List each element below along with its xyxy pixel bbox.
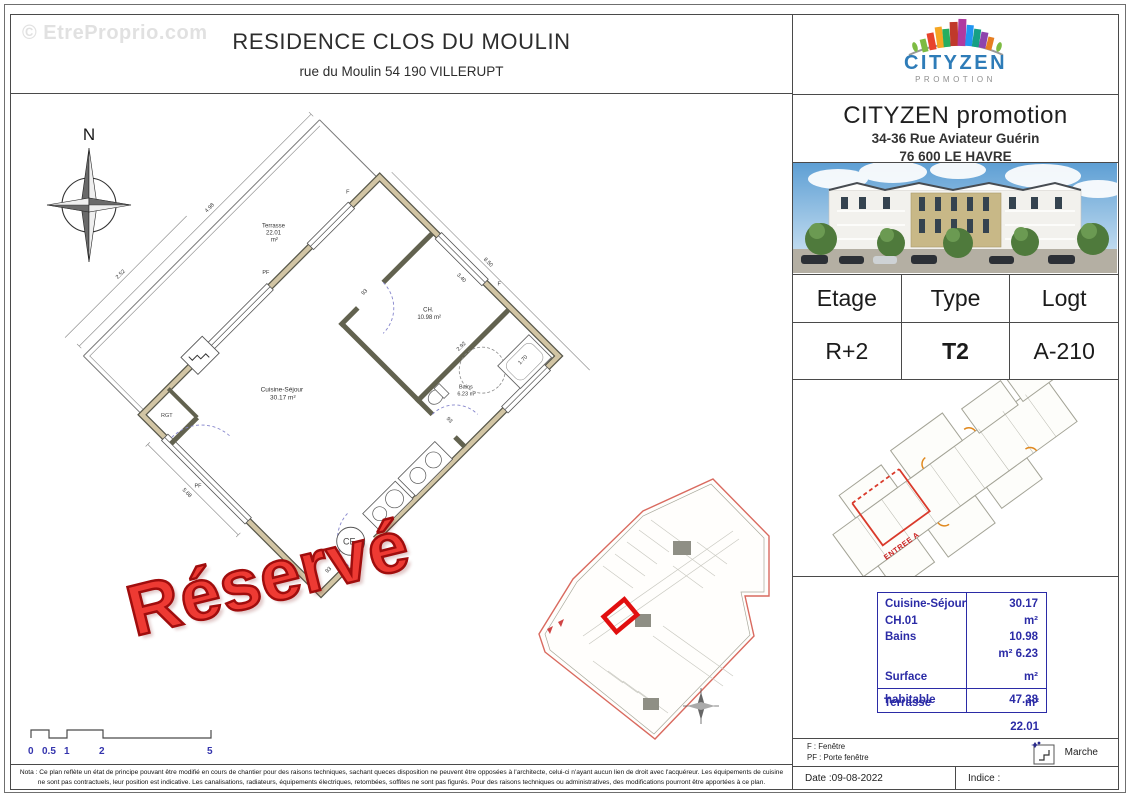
promoter-street: 34-36 Rue Aviateur Guérin (793, 130, 1118, 148)
svg-text:0: 0 (28, 746, 34, 757)
terrasse-label: Terrasse (877, 690, 967, 709)
value-logt: A-210 (1010, 323, 1118, 379)
terrasse-unit: m² (967, 690, 1047, 709)
marche-label: Marche (1065, 747, 1098, 758)
info-panel: CITYZEN PROMOTION CITYZEN promotion 34-3… (793, 14, 1119, 790)
surface-val-1: 30.17 (967, 596, 1038, 613)
svg-text:2.52: 2.52 (115, 269, 127, 281)
value-etage: R+2 (793, 323, 902, 379)
header-etage: Etage (793, 275, 902, 322)
logo-buildings (911, 19, 1003, 53)
plan-area: N (11, 94, 792, 764)
date-row: Date :09-08-2022 Indice : (793, 767, 1118, 789)
residence-address: rue du Moulin 54 190 VILLERUPT (299, 64, 503, 79)
surface-room-2: CH.01 (885, 613, 966, 630)
surface-label: Surface (878, 666, 966, 689)
surface-val-4: m² 6.23 (967, 646, 1038, 663)
building-photo (793, 163, 1118, 275)
indice-field: Indice : (955, 767, 1118, 789)
building-key-plan: ENTREE A (793, 380, 1118, 577)
svg-text:1: 1 (64, 746, 70, 757)
watermark: © EtreProprio.com (22, 22, 208, 45)
svg-text:5.68: 5.68 (181, 487, 193, 499)
room-label-terrasse: Terrasse 22.01 m² (262, 223, 287, 243)
svg-text:PF: PF (194, 484, 202, 490)
nota-strip: Nota : Ce plan reflète un état de princi… (11, 764, 792, 789)
logo-wordmark: CITYZEN (904, 53, 1007, 73)
marche-icon (1030, 741, 1056, 765)
logo-box: CITYZEN PROMOTION (793, 15, 1118, 95)
surface-val-3: 10.98 (967, 629, 1038, 646)
surface-unit: m² (966, 666, 1046, 689)
header-type: Type (902, 275, 1011, 322)
surface-val-2: m² (967, 613, 1038, 630)
legend-pf: PF : Porte fenêtre (807, 753, 869, 764)
svg-text:F: F (498, 281, 502, 287)
site-plan (523, 446, 789, 746)
value-type: T2 (902, 323, 1011, 379)
logo-subtitle: PROMOTION (915, 75, 996, 84)
legend-box: F : Fenêtre PF : Porte fenêtre Marche (793, 739, 1118, 767)
header-logt: Logt (1010, 275, 1118, 322)
key-plan-svg: ENTREE A (793, 380, 1117, 576)
terrasse-value: 22.01 (967, 709, 1047, 733)
plan-sheet: RESIDENCE CLOS DU MOULIN rue du Moulin 5… (10, 14, 793, 790)
svg-text:8.50: 8.50 (482, 257, 494, 269)
terrasse-rows: Terrasse m² 22.01 (877, 690, 1047, 733)
svg-text:F: F (346, 189, 350, 195)
scale-bar: 0 0.5 1 2 5 (23, 724, 233, 764)
surface-room-3: Bains (885, 629, 966, 646)
svg-text:0.5: 0.5 (42, 746, 56, 757)
svg-text:5: 5 (207, 746, 213, 757)
promoter-name: CITYZEN promotion (793, 102, 1118, 130)
svg-text:2: 2 (99, 746, 105, 757)
surface-table-section: Cuisine-Séjour CH.01 Bains 30.17 m² 10.9… (793, 577, 1118, 739)
room-label-bains: Bains 6.23 m² (457, 385, 476, 398)
legend-f: F : Fenêtre (807, 742, 869, 753)
nota-line-1: Nota : Ce plan reflète un état de princi… (11, 768, 792, 778)
residence-title: RESIDENCE CLOS DU MOULIN (232, 29, 570, 55)
building-render (793, 163, 1117, 273)
unit-info-value-row: R+2 T2 A-210 (793, 323, 1118, 380)
surface-room-1: Cuisine-Séjour (885, 596, 966, 613)
unit-info-header-row: Etage Type Logt (793, 275, 1118, 323)
date-field: Date :09-08-2022 (793, 767, 955, 789)
promoter-address-box: CITYZEN promotion 34-36 Rue Aviateur Gué… (793, 95, 1118, 163)
rgt-label: RGT (161, 413, 173, 419)
nota-line-2: ne sont pas contractuels, leur position … (11, 778, 792, 788)
svg-text:4.98: 4.98 (204, 202, 216, 214)
svg-text:PF: PF (262, 270, 270, 276)
